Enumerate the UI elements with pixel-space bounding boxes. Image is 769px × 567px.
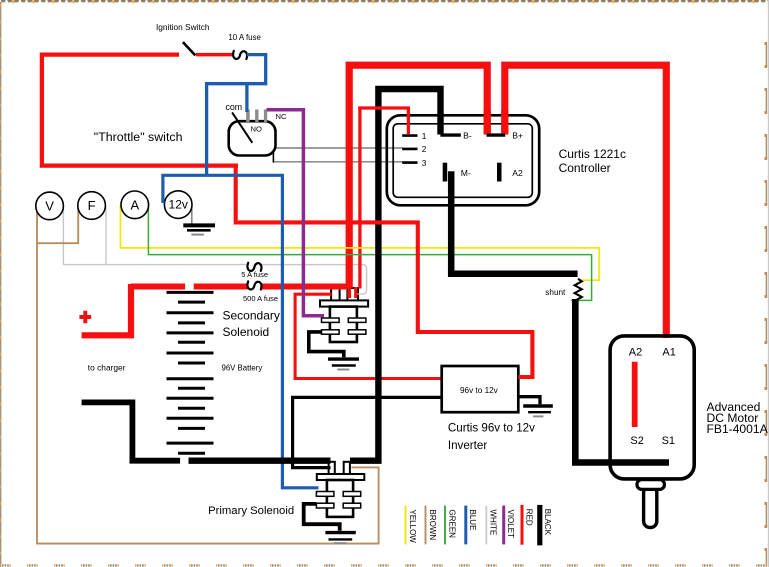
svg-text:BLUE: BLUE bbox=[468, 510, 477, 531]
svg-text:S2: S2 bbox=[630, 435, 643, 447]
svg-text:B+: B+ bbox=[512, 131, 523, 141]
svg-text:Primary Solenoid: Primary Solenoid bbox=[208, 505, 294, 517]
svg-text:to charger: to charger bbox=[88, 363, 126, 373]
svg-text:96v to 12v: 96v to 12v bbox=[460, 386, 499, 395]
svg-text:A: A bbox=[130, 197, 139, 212]
svg-text:M-: M- bbox=[461, 168, 471, 178]
svg-text:A2: A2 bbox=[512, 168, 523, 178]
svg-text:A1: A1 bbox=[662, 346, 675, 358]
svg-text:A2: A2 bbox=[629, 346, 642, 358]
svg-text:shunt: shunt bbox=[545, 288, 566, 297]
svg-text:Ignition Switch: Ignition Switch bbox=[156, 22, 210, 32]
svg-text:5 A fuse: 5 A fuse bbox=[241, 270, 268, 279]
svg-text:1: 1 bbox=[422, 131, 427, 141]
svg-text:2: 2 bbox=[422, 144, 427, 154]
svg-text:Solenoid: Solenoid bbox=[223, 325, 270, 339]
svg-text:Curtis 1221c: Curtis 1221c bbox=[559, 147, 626, 161]
svg-text:Secondary: Secondary bbox=[223, 309, 280, 323]
svg-text:Inverter: Inverter bbox=[448, 439, 487, 452]
svg-text:WHITE: WHITE bbox=[489, 510, 498, 536]
svg-text:S1: S1 bbox=[662, 435, 675, 447]
svg-text:12v: 12v bbox=[169, 198, 188, 212]
svg-text:Controller: Controller bbox=[559, 161, 611, 175]
svg-text:96V Battery: 96V Battery bbox=[222, 363, 263, 372]
svg-text:YELLOW: YELLOW bbox=[408, 510, 417, 544]
svg-text:500 A fuse: 500 A fuse bbox=[243, 294, 278, 303]
svg-text:NO: NO bbox=[251, 125, 262, 134]
svg-text:10 A fuse: 10 A fuse bbox=[228, 33, 261, 42]
svg-text:Curtis 96v to 12v: Curtis 96v to 12v bbox=[448, 421, 535, 434]
svg-text:RED: RED bbox=[524, 509, 533, 526]
svg-text:V: V bbox=[45, 199, 54, 214]
svg-text:B-: B- bbox=[463, 131, 472, 141]
svg-text:BROWN: BROWN bbox=[428, 510, 437, 541]
svg-text:F: F bbox=[88, 198, 96, 213]
svg-text:FB1-4001A: FB1-4001A bbox=[707, 422, 769, 436]
svg-text:3: 3 bbox=[422, 158, 427, 168]
svg-text:"Throttle" switch: "Throttle" switch bbox=[94, 130, 183, 144]
svg-text:VIOLET: VIOLET bbox=[506, 510, 515, 539]
svg-text:com: com bbox=[226, 102, 243, 112]
svg-text:NC: NC bbox=[276, 112, 287, 121]
svg-text:GREEN: GREEN bbox=[447, 510, 456, 539]
svg-text:BLACK: BLACK bbox=[543, 509, 552, 536]
